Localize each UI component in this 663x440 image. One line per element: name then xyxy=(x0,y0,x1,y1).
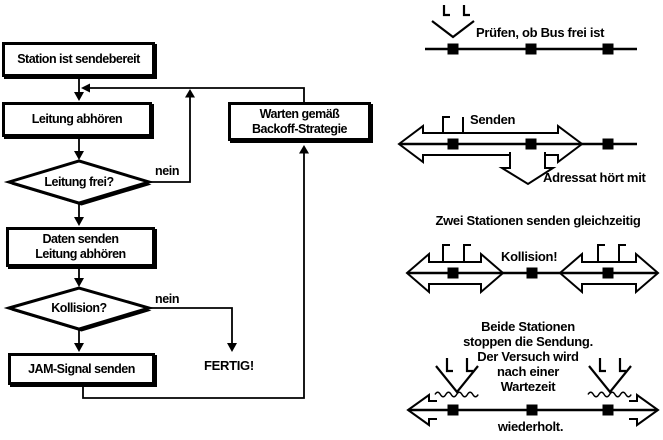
flow-box-backoff: Warten gemäß Backoff-Strategie xyxy=(228,102,371,141)
backoff-box-line1: Warten gemäß xyxy=(252,107,347,122)
done-label: FERTIG! xyxy=(204,359,254,373)
backoff-text-line2: stoppen die Sendung. xyxy=(448,335,608,350)
flow-box-jam: JAM-Signal senden xyxy=(8,353,155,385)
station-square xyxy=(603,405,614,416)
station-square xyxy=(448,44,459,55)
station-tap-ticks xyxy=(443,117,463,133)
backoff-text-line1: Beide Stationen xyxy=(448,320,608,335)
station-square xyxy=(603,268,614,279)
send-box-line2: Leitung abhören xyxy=(35,247,125,262)
edge-backoff-to-loop xyxy=(84,88,304,102)
flow-box-listen: Leitung abhören xyxy=(2,102,152,137)
station-square xyxy=(527,405,538,416)
flow-box-send-data: Daten senden Leitung abhören xyxy=(6,227,155,267)
send-box-line1: Daten senden xyxy=(35,232,125,247)
edge-nein-collision xyxy=(149,308,232,350)
backoff-text-line5: Wartezeit xyxy=(448,380,608,395)
station-square xyxy=(448,268,459,279)
caption-senden: Senden xyxy=(470,113,515,127)
station-square xyxy=(527,268,538,279)
backoff-text-line4: nach einer xyxy=(448,365,608,380)
edge-label-nein-free: nein xyxy=(155,165,179,179)
station-square xyxy=(603,44,614,55)
caption-wiederholt: wiederholt. xyxy=(468,420,593,434)
csma-cd-diagram: Station ist sendebereit Leitung abhören … xyxy=(0,0,663,440)
backoff-box-line2: Backoff-Strategie xyxy=(252,122,347,137)
station-square xyxy=(526,139,537,150)
decision-free-label: Leitung frei? xyxy=(9,175,149,189)
station-square xyxy=(448,139,459,150)
probe-down-arrow-icon xyxy=(432,5,474,37)
caption-adressat: Adressat hört mit xyxy=(543,171,646,185)
flow-box-start: Station ist sendebereit xyxy=(2,42,155,77)
station-square xyxy=(603,139,614,150)
station-square xyxy=(526,44,537,55)
caption-kollision: Kollision! xyxy=(501,250,557,264)
backoff-text-line3: Der Versuch wird xyxy=(448,350,608,365)
flow-box-jam-label: JAM-Signal senden xyxy=(28,362,135,377)
flow-box-listen-label: Leitung abhören xyxy=(32,112,122,127)
station-square xyxy=(448,405,459,416)
decision-collision-label: Kollision? xyxy=(9,301,149,315)
caption-backoff-block: Beide Stationen stoppen die Sendung. Der… xyxy=(448,320,608,395)
flow-box-start-label: Station ist sendebereit xyxy=(17,52,140,67)
edge-label-nein-collision: nein xyxy=(155,293,179,307)
caption-collision-title: Zwei Stationen senden gleichzeitig xyxy=(422,214,654,228)
caption-check-bus: Prüfen, ob Bus frei ist xyxy=(476,26,604,40)
